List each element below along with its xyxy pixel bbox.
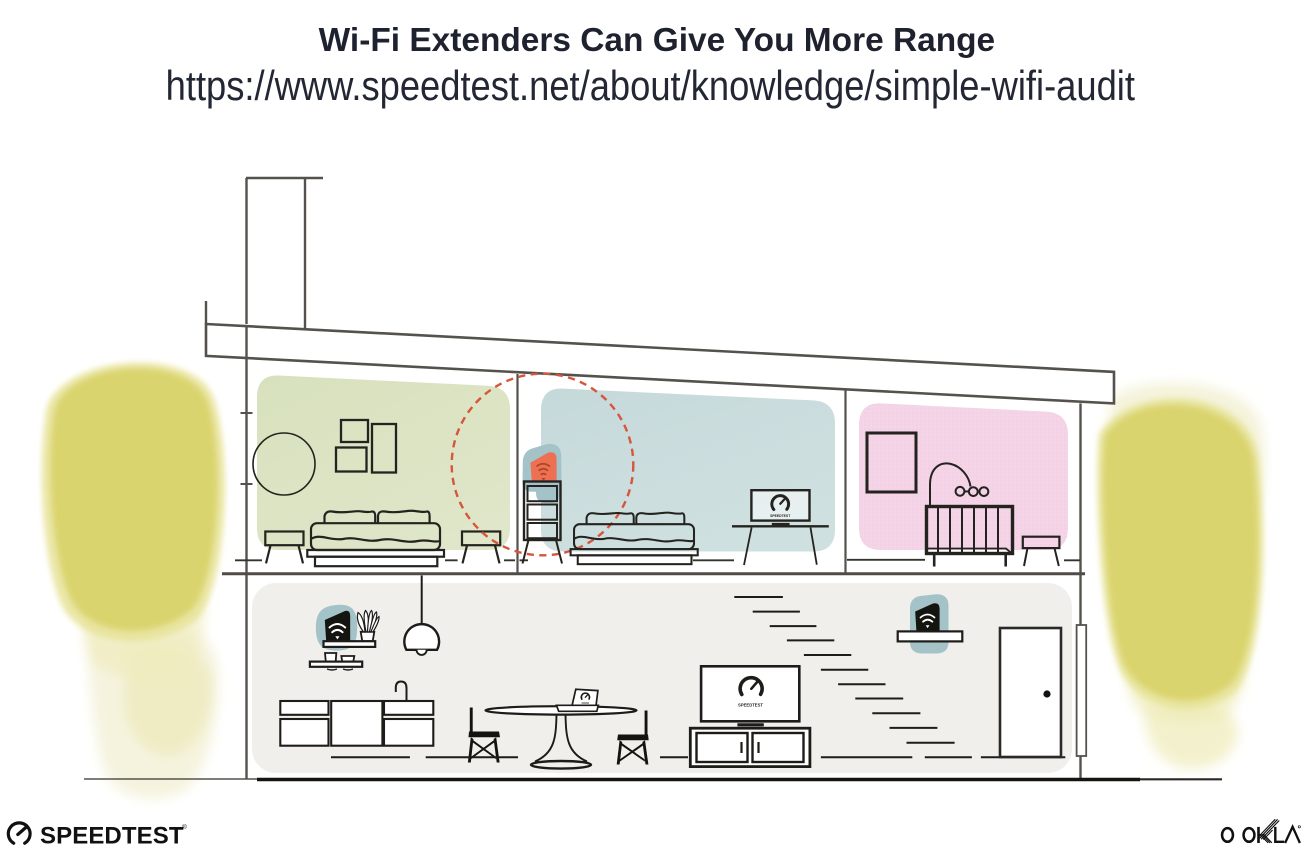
svg-text:SPEEDTEST: SPEEDTEST [738,703,763,708]
svg-text:SPEEDTEST: SPEEDTEST [770,514,791,518]
svg-text:®: ® [182,823,187,831]
svg-text:SPEEDTEST: SPEEDTEST [40,823,184,850]
